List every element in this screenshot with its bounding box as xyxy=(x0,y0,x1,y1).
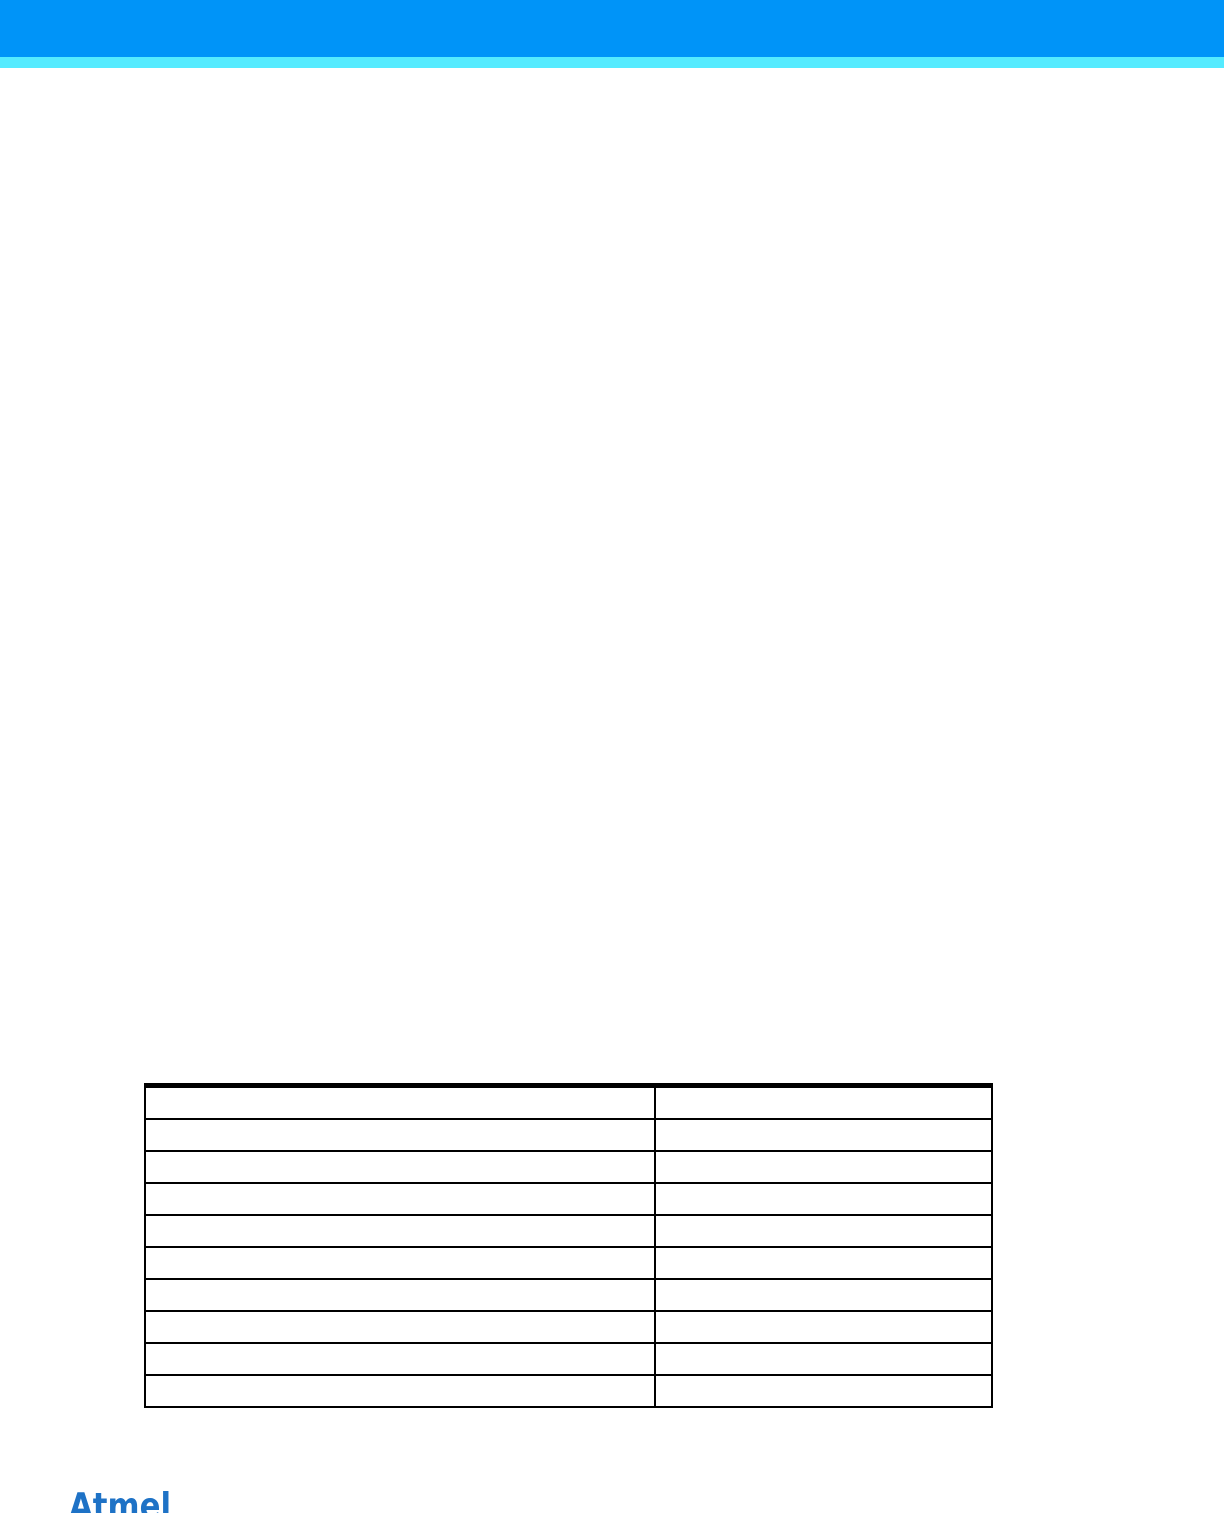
table-cell xyxy=(655,1247,992,1279)
table-row xyxy=(145,1215,992,1247)
table-cell xyxy=(145,1247,655,1279)
document-page: Atmel xyxy=(0,0,1224,1513)
table-cell xyxy=(145,1311,655,1343)
table-row xyxy=(145,1247,992,1279)
data-table xyxy=(144,1083,993,1408)
table-cell xyxy=(145,1279,655,1311)
table-cell xyxy=(655,1215,992,1247)
table-cell xyxy=(145,1151,655,1183)
table-row xyxy=(145,1279,992,1311)
table-cell xyxy=(655,1151,992,1183)
table-body xyxy=(145,1119,992,1407)
table-cell xyxy=(145,1343,655,1375)
atmel-logo: Atmel xyxy=(69,1485,173,1513)
table-cell xyxy=(655,1279,992,1311)
table-cell xyxy=(145,1375,655,1407)
table-cell xyxy=(655,1119,992,1151)
table-cell xyxy=(145,1119,655,1151)
table-cell xyxy=(145,1215,655,1247)
table-cell xyxy=(655,1183,992,1215)
table-row xyxy=(145,1119,992,1151)
table-cell xyxy=(655,1343,992,1375)
table-cell xyxy=(145,1183,655,1215)
table-row xyxy=(145,1343,992,1375)
table-cell xyxy=(655,1311,992,1343)
table-cell xyxy=(655,1375,992,1407)
table-row xyxy=(145,1375,992,1407)
atmel-logo-text: Atmel xyxy=(69,1486,171,1513)
table-header-cell xyxy=(145,1086,655,1120)
table-row xyxy=(145,1311,992,1343)
header-bar xyxy=(0,0,1224,57)
table-header-row xyxy=(145,1086,992,1120)
table-header-cell xyxy=(655,1086,992,1120)
table-row xyxy=(145,1151,992,1183)
header-accent-stripe xyxy=(0,57,1224,68)
table-row xyxy=(145,1183,992,1215)
